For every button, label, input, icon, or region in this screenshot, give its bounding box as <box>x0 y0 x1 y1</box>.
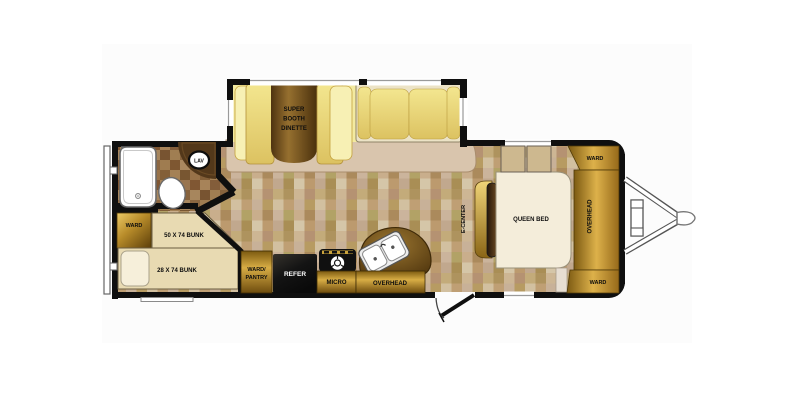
svg-text:28 X 74 BUNK: 28 X 74 BUNK <box>157 268 197 274</box>
svg-text:WARD: WARD <box>587 156 604 162</box>
svg-text:BOOTH: BOOTH <box>283 117 305 123</box>
svg-text:OVERHEAD: OVERHEAD <box>588 199 594 234</box>
svg-text:WARD: WARD <box>590 280 607 286</box>
svg-text:DINETTE: DINETTE <box>281 126 307 132</box>
svg-text:OVERHEAD: OVERHEAD <box>373 281 408 287</box>
svg-text:QUEEN BED: QUEEN BED <box>513 217 549 223</box>
svg-text:PANTRY: PANTRY <box>246 275 268 281</box>
svg-text:WARD/: WARD/ <box>247 267 266 273</box>
svg-text:REFER: REFER <box>284 271 306 278</box>
svg-text:E-CENTER: E-CENTER <box>461 205 467 233</box>
svg-text:LAV: LAV <box>194 159 204 165</box>
svg-text:WARD: WARD <box>126 223 143 229</box>
svg-text:50 X 74 BUNK: 50 X 74 BUNK <box>164 233 204 239</box>
svg-text:SUPER: SUPER <box>284 107 305 113</box>
svg-text:MICRO: MICRO <box>327 280 347 286</box>
